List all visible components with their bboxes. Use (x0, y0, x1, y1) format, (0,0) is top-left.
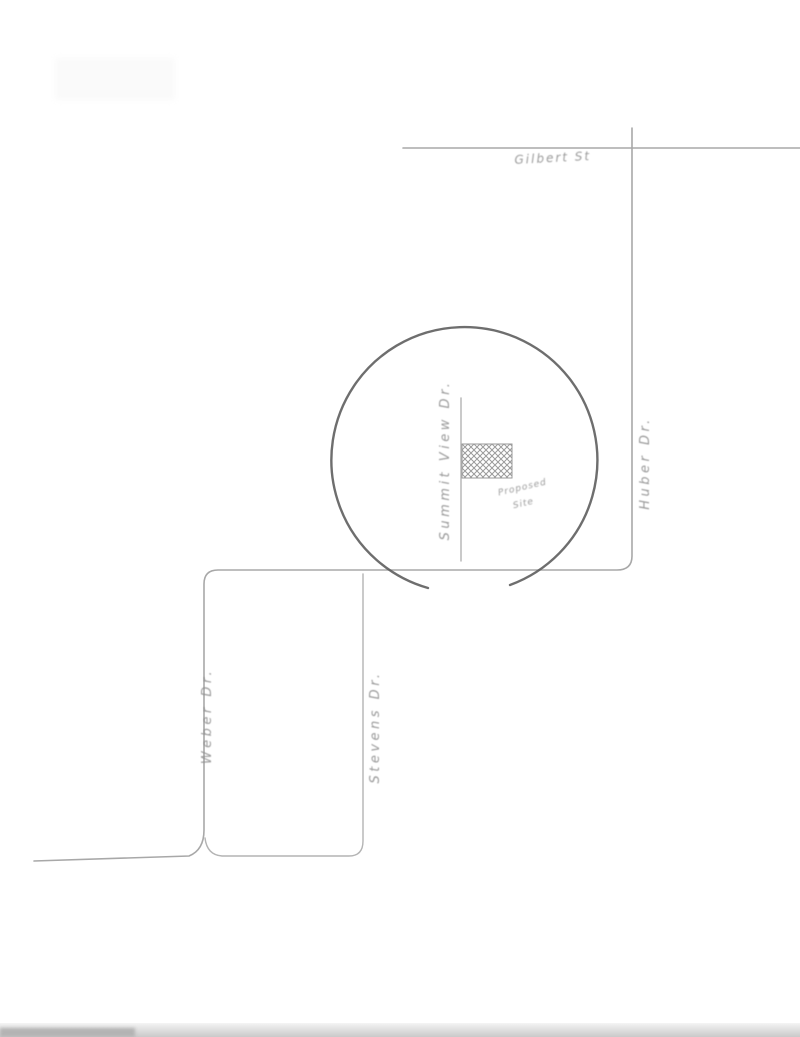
site-annotation-line1: Proposed (497, 478, 548, 499)
scanned-site-sketch-page: Gilbert St Huber Dr. Summit View Dr. Web… (0, 0, 800, 1037)
proposed-site-hatch-box (462, 444, 512, 478)
loop-street-label: Stevens Dr. (368, 671, 383, 784)
inner-street-label: Summit View Dr. (438, 380, 453, 541)
right-and-left-street-line (34, 128, 632, 861)
hand-drawn-location-map: Gilbert St Huber Dr. Summit View Dr. Web… (0, 0, 800, 1037)
top-street-label: Gilbert St (514, 149, 591, 167)
right-street-label: Huber Dr. (638, 416, 653, 510)
scan-bottom-edge-dark-corner (0, 1028, 135, 1037)
site-annotation-line2: Site (512, 497, 535, 512)
left-street-label: Weber Dr. (200, 668, 215, 764)
loop-street-line (205, 574, 363, 856)
